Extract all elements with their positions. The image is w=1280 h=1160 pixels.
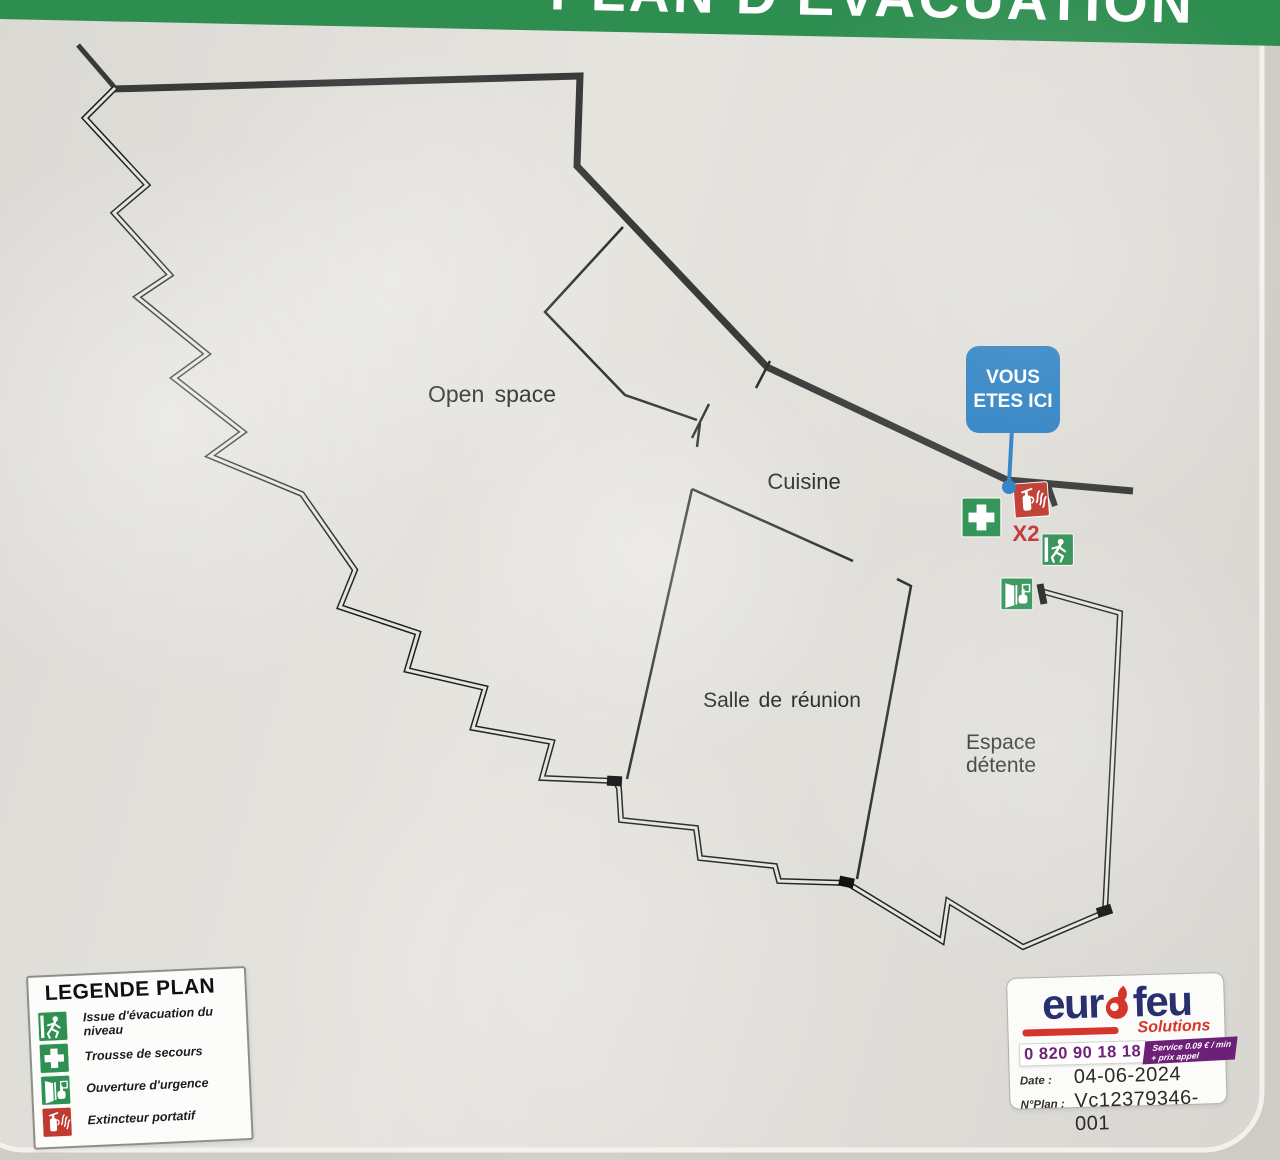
emergency-opening-icon: [41, 1075, 71, 1105]
date-value: 04-06-2024: [1073, 1063, 1181, 1089]
you-are-here-line2: ETES ICI: [973, 391, 1052, 412]
you-are-here-line1: VOUS: [986, 367, 1040, 388]
room-label-cuisine: Cuisine: [767, 469, 840, 494]
room-label-espace-detente-1: Espace: [966, 731, 1036, 754]
room-label-salle-de-reunion: Salle de réunion: [703, 689, 861, 712]
meeting-room-right-wall: [857, 579, 911, 879]
evacuation-plan-photo: PLAN D'ÉVACUATION: [0, 0, 1280, 1160]
plan-number-label: N°Plan :: [1020, 1098, 1074, 1112]
fire-extinguisher-icon: [42, 1107, 72, 1137]
title-banner: PLAN D'ÉVACUATION: [0, 0, 1280, 46]
vendor-logo-right: feu: [1132, 982, 1192, 1022]
vendor-phone: 0 820 90 18 18: [1019, 1040, 1147, 1067]
legend-title: LEGENDE PLAN: [44, 973, 237, 1006]
legend-item-label: Extincteur portatif: [87, 1108, 195, 1127]
room-label-open-space: Open space: [428, 381, 556, 407]
you-are-here-badge: VOUS ETES ICI: [966, 346, 1060, 494]
door-tick: [692, 404, 709, 438]
flame-icon: [1101, 981, 1134, 1022]
brand-underline: [1022, 1027, 1118, 1037]
extinguisher-count-label: X2: [1013, 521, 1040, 546]
meeting-room-left-wall: [627, 489, 692, 779]
vendor-logo-left: eur: [1042, 984, 1104, 1024]
meeting-room-top-wall: [692, 489, 853, 561]
you-are-here-dot: [1002, 480, 1016, 494]
phone-service-badge: Service 0.09 € / min + prix appel: [1143, 1036, 1239, 1064]
room-label-espace-detente-2: détente: [966, 754, 1036, 777]
legend-panel: LEGENDE PLAN Issue d'évacuation du nivea…: [26, 966, 254, 1150]
exit-running-man-icon: [1042, 534, 1073, 565]
first-aid-cross-icon: [39, 1043, 69, 1073]
service-rate-line2: + prix appel: [1151, 1050, 1200, 1063]
legend-item-label: Ouverture d'urgence: [86, 1076, 209, 1096]
plan-number-value: Vc12379346-001: [1074, 1086, 1219, 1136]
wall-junction-markers: [607, 776, 1113, 918]
emergency-opening-icon: [1001, 578, 1033, 610]
fire-extinguisher-icon: [1013, 482, 1050, 519]
exit-running-man-icon: [38, 1011, 68, 1041]
openspace-cuisine-partition: [545, 227, 697, 420]
vendor-tagline: Solutions: [1137, 1017, 1210, 1037]
legend-item-label: Issue d'évacuation du niveau: [83, 1003, 239, 1038]
room-labels: Open space Cuisine Salle de réunion Espa…: [428, 381, 1036, 777]
vendor-card: eur feu Solutions 0 820 90 18 18 Service…: [1006, 972, 1228, 1110]
date-label: Date :: [1020, 1074, 1074, 1088]
legend-item-label: Trousse de secours: [84, 1044, 202, 1063]
first-aid-cross-icon: [962, 498, 1001, 537]
